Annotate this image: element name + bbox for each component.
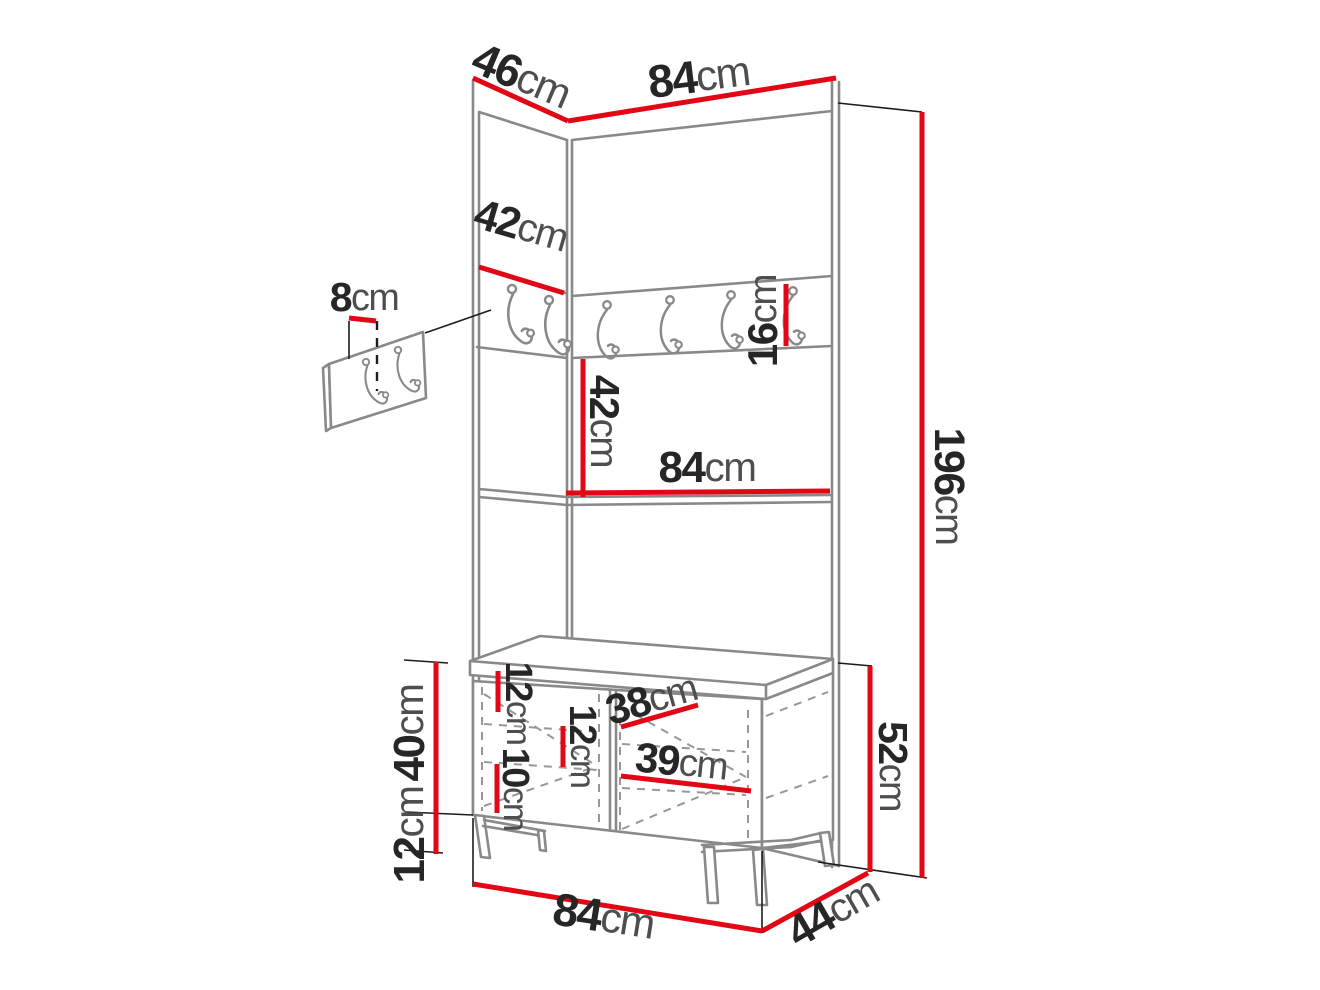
diagram-canvas: 46cm 84cm 42cm 8cm 16cm 42cm 84cm 196cm … [0,0,1320,990]
dim-line-side-hook-panel [479,267,564,293]
dim-label-bench-depth: 44cm [778,866,886,957]
dim-line-hook-plate [349,318,376,321]
dim-label-bench-width: 84cm [549,883,657,950]
dim-label-bench-top-clearance: 12cm [497,662,539,745]
dim-label-bench-total-height: 52cm [870,721,916,811]
detail-hook-panel [323,310,491,431]
dim-label-rail-to-shelf: 42cm [581,375,628,467]
detail-leader-line [425,310,491,333]
dim-label-top-width: 84cm [645,44,752,108]
dim-label-side-hook-panel-width: 42cm [469,190,573,262]
dim-label-bench-leg-height: 12cm [385,787,434,884]
dim-label-bench-bottom-clearance: 10cm [494,748,536,831]
dim-label-top-depth: 46cm [465,32,579,120]
height-leader-line [838,103,922,112]
dim-label-hook-plate-height: 8cm [330,274,399,320]
furniture-dimension-diagram: 46cm 84cm 42cm 8cm 16cm 42cm 84cm 196cm … [0,0,1320,990]
dim-label-bench-middle-clearance: 12cm [561,705,603,788]
dim-label-shelf-width: 84cm [659,443,756,492]
dim-label-hook-height: 16cm [739,275,786,367]
dim-label-total-height: 196cm [925,428,973,545]
dim-label-bench-body-height: 40cm [385,685,434,782]
